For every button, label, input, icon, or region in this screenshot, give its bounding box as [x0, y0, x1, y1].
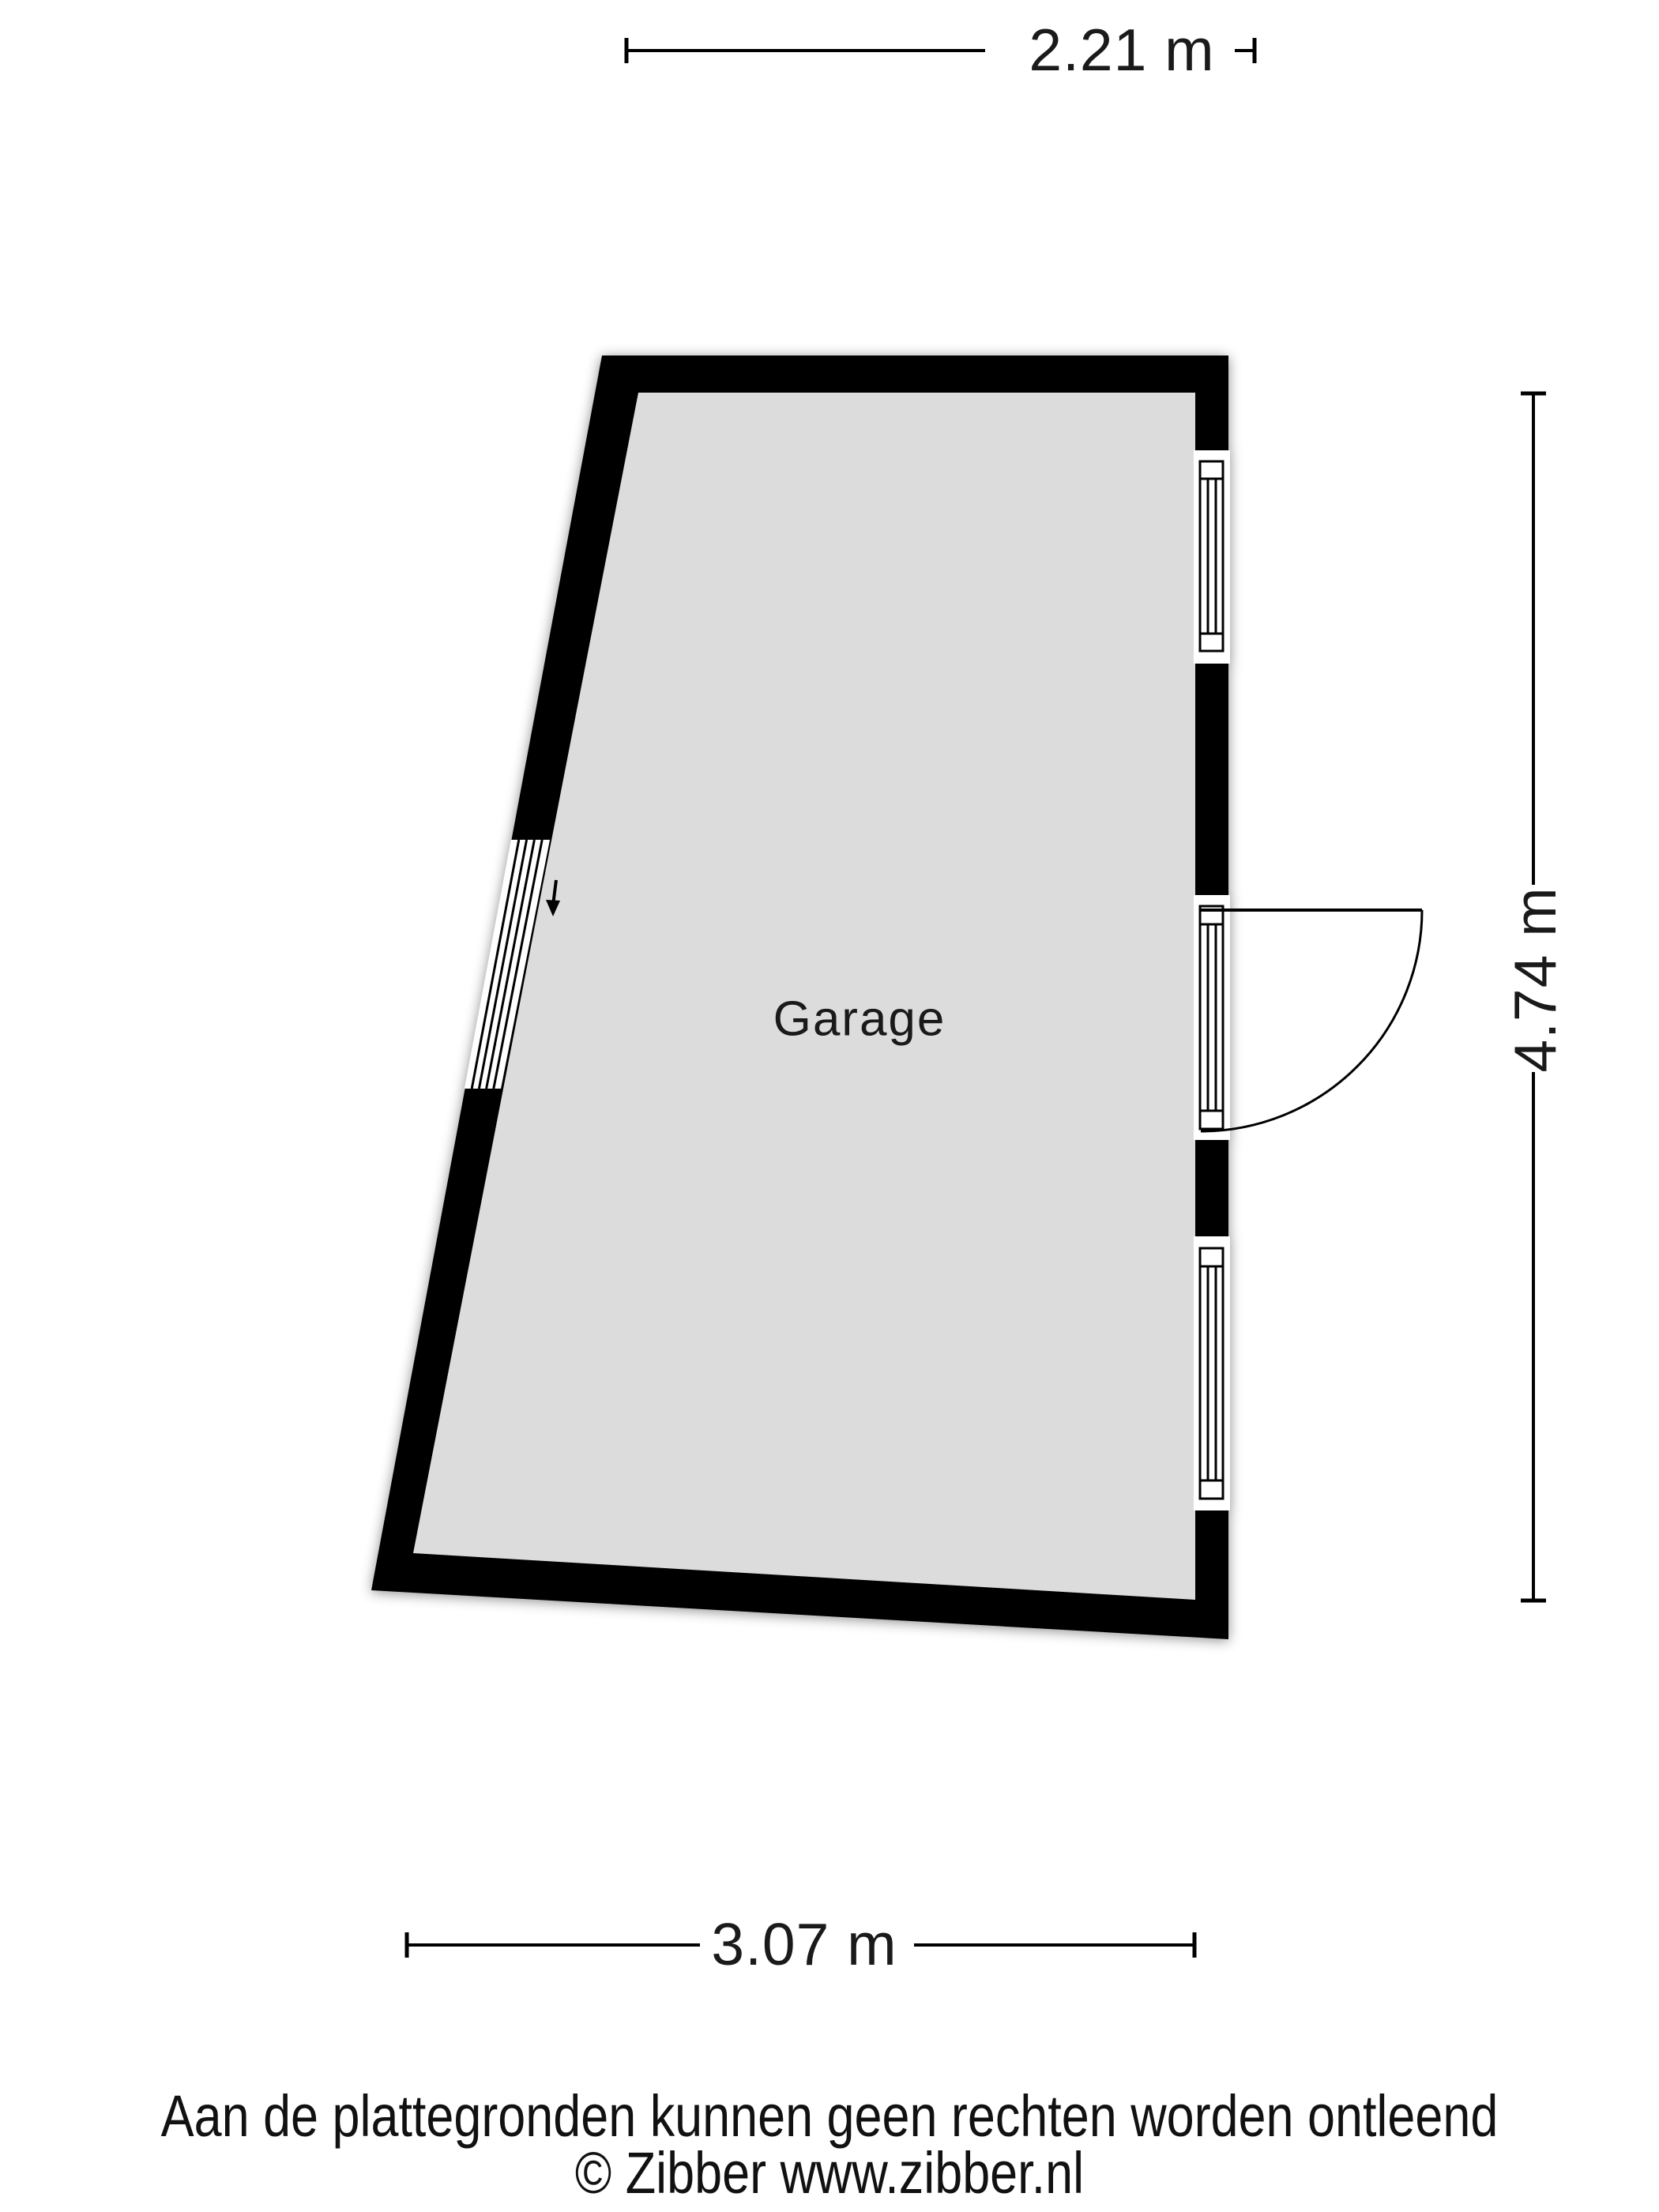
floorplan-canvas	[0, 0, 1659, 2212]
page: { "floorplan": { "room": { "label": "Gar…	[0, 0, 1659, 2212]
dimension-label-top: 2.21 m	[1029, 16, 1214, 84]
window-bottom-right	[1194, 1236, 1230, 1510]
dimension-label-bottom: 3.07 m	[711, 1910, 897, 1978]
room-label-garage: Garage	[773, 991, 946, 1048]
dimension-label-right: 4.74 m	[1501, 886, 1569, 1072]
door-opening-right	[1194, 895, 1230, 1140]
door-swing	[1201, 910, 1422, 1131]
window-top-right	[1194, 450, 1230, 664]
footer-copyright: © Zibber www.zibber.nl	[575, 2139, 1084, 2206]
